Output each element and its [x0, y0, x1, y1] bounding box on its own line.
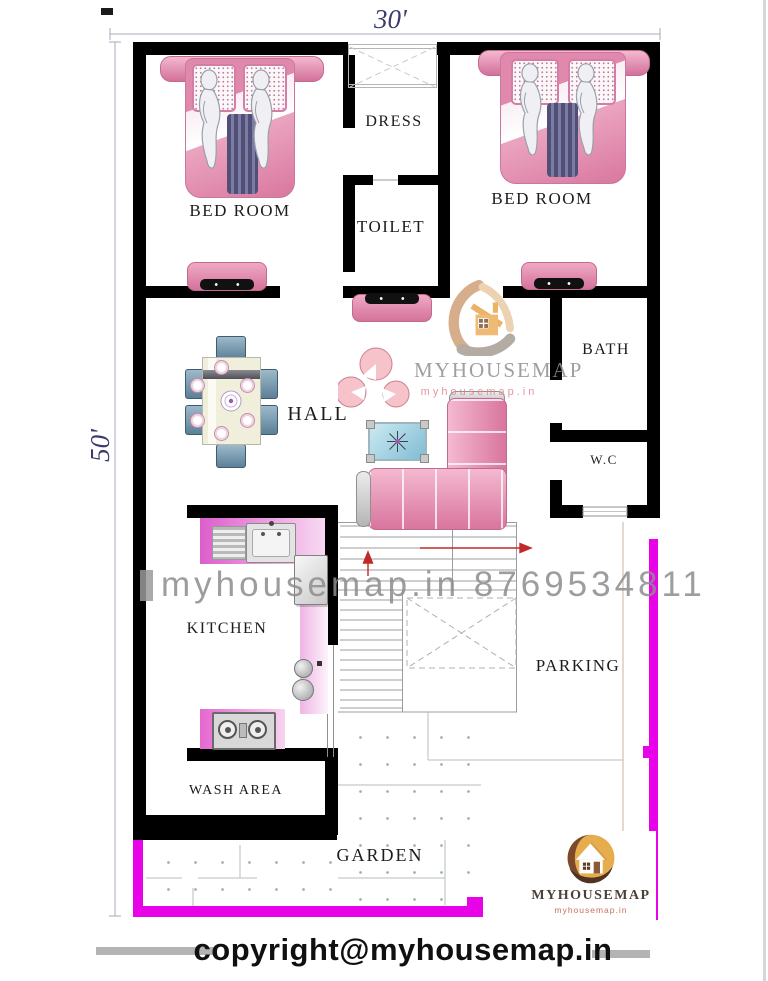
wall	[343, 55, 355, 128]
gas-cylinder-icon	[294, 659, 313, 678]
stove-icon	[212, 712, 276, 750]
wall	[550, 505, 583, 518]
double-bed-icon	[500, 52, 626, 184]
center-logo-site: myhousemap.in	[414, 386, 544, 398]
watermark-text: myhousemap.in 8769534811	[161, 565, 706, 605]
dimension-height-label: 50'	[85, 429, 116, 462]
floor-plan-canvas: 30' 50'	[0, 0, 768, 981]
gas-cylinder-icon	[292, 679, 314, 701]
wall	[647, 42, 660, 517]
myhousemap-logo-icon	[433, 280, 525, 356]
sleeping-person-icon	[244, 67, 278, 179]
compound-wall-gate-block	[467, 897, 483, 916]
wall	[343, 175, 355, 272]
dimension-width-label: 30'	[374, 4, 407, 35]
garden-tiles	[338, 715, 483, 906]
watermark-band: myhousemap.in 8769534811	[140, 565, 706, 605]
wall	[133, 42, 146, 822]
tv-icon	[200, 279, 254, 290]
double-bed-icon	[185, 58, 295, 198]
center-table-icon	[368, 422, 427, 461]
kitchen-drainboard-icon	[212, 526, 246, 560]
wall	[187, 505, 338, 518]
wall	[398, 175, 450, 185]
room-label-wash-area: WASH AREA	[189, 783, 283, 799]
footer-logo: MYHOUSEMAP myhousemap.in	[526, 831, 656, 921]
room-label-dress: DRESS	[365, 113, 422, 131]
wall	[133, 42, 348, 55]
wall	[133, 815, 337, 840]
kitchen-sink-icon	[246, 523, 296, 563]
dining-set-icon	[183, 334, 279, 468]
sofa-armrest-icon	[356, 471, 371, 527]
sleeping-person-icon	[513, 61, 547, 165]
sleeping-person-icon	[192, 67, 226, 179]
room-label-toilet: TOILET	[357, 217, 425, 237]
compound-wall-notch	[643, 746, 650, 758]
watermark-bar	[140, 570, 153, 601]
footer-logo-brand: MYHOUSEMAP	[526, 888, 656, 904]
copyright-text: copyright@myhousemap.in	[194, 932, 613, 968]
starburst-icon	[387, 431, 408, 452]
room-label-garden: GARDEN	[337, 845, 424, 866]
footer-logo-site: myhousemap.in	[526, 905, 656, 915]
center-watermark-logo: MYHOUSEMAP myhousemap.in	[414, 280, 544, 398]
garden-tiles	[146, 840, 338, 906]
wall	[627, 505, 660, 518]
myhousemap-logo-icon	[564, 831, 618, 887]
room-label-bedroom-left: BED ROOM	[189, 201, 290, 221]
page-right-edge	[763, 0, 766, 981]
tv-icon	[365, 293, 419, 304]
sleeping-person-icon	[569, 61, 603, 165]
compound-wall-bottom	[133, 906, 483, 917]
room-label-parking: PARKING	[536, 656, 621, 676]
wall	[343, 175, 373, 185]
sofa-seat-icon	[368, 468, 507, 530]
wall	[550, 430, 647, 442]
tv-unit-icon	[187, 262, 267, 291]
room-label-hall: HALL	[287, 403, 348, 426]
wall	[438, 55, 450, 286]
room-label-bedroom-right: BED ROOM	[491, 189, 592, 209]
room-label-bath: BATH	[582, 341, 630, 359]
crop-artifact	[101, 8, 113, 15]
room-label-wc: W.C	[590, 452, 618, 468]
valve-dot-icon	[317, 661, 322, 666]
room-label-kitchen: KITCHEN	[187, 620, 268, 638]
center-logo-brand: MYHOUSEMAP	[414, 358, 544, 383]
table-centerpiece-icon	[220, 390, 242, 412]
petal-decor-icon	[338, 346, 412, 416]
